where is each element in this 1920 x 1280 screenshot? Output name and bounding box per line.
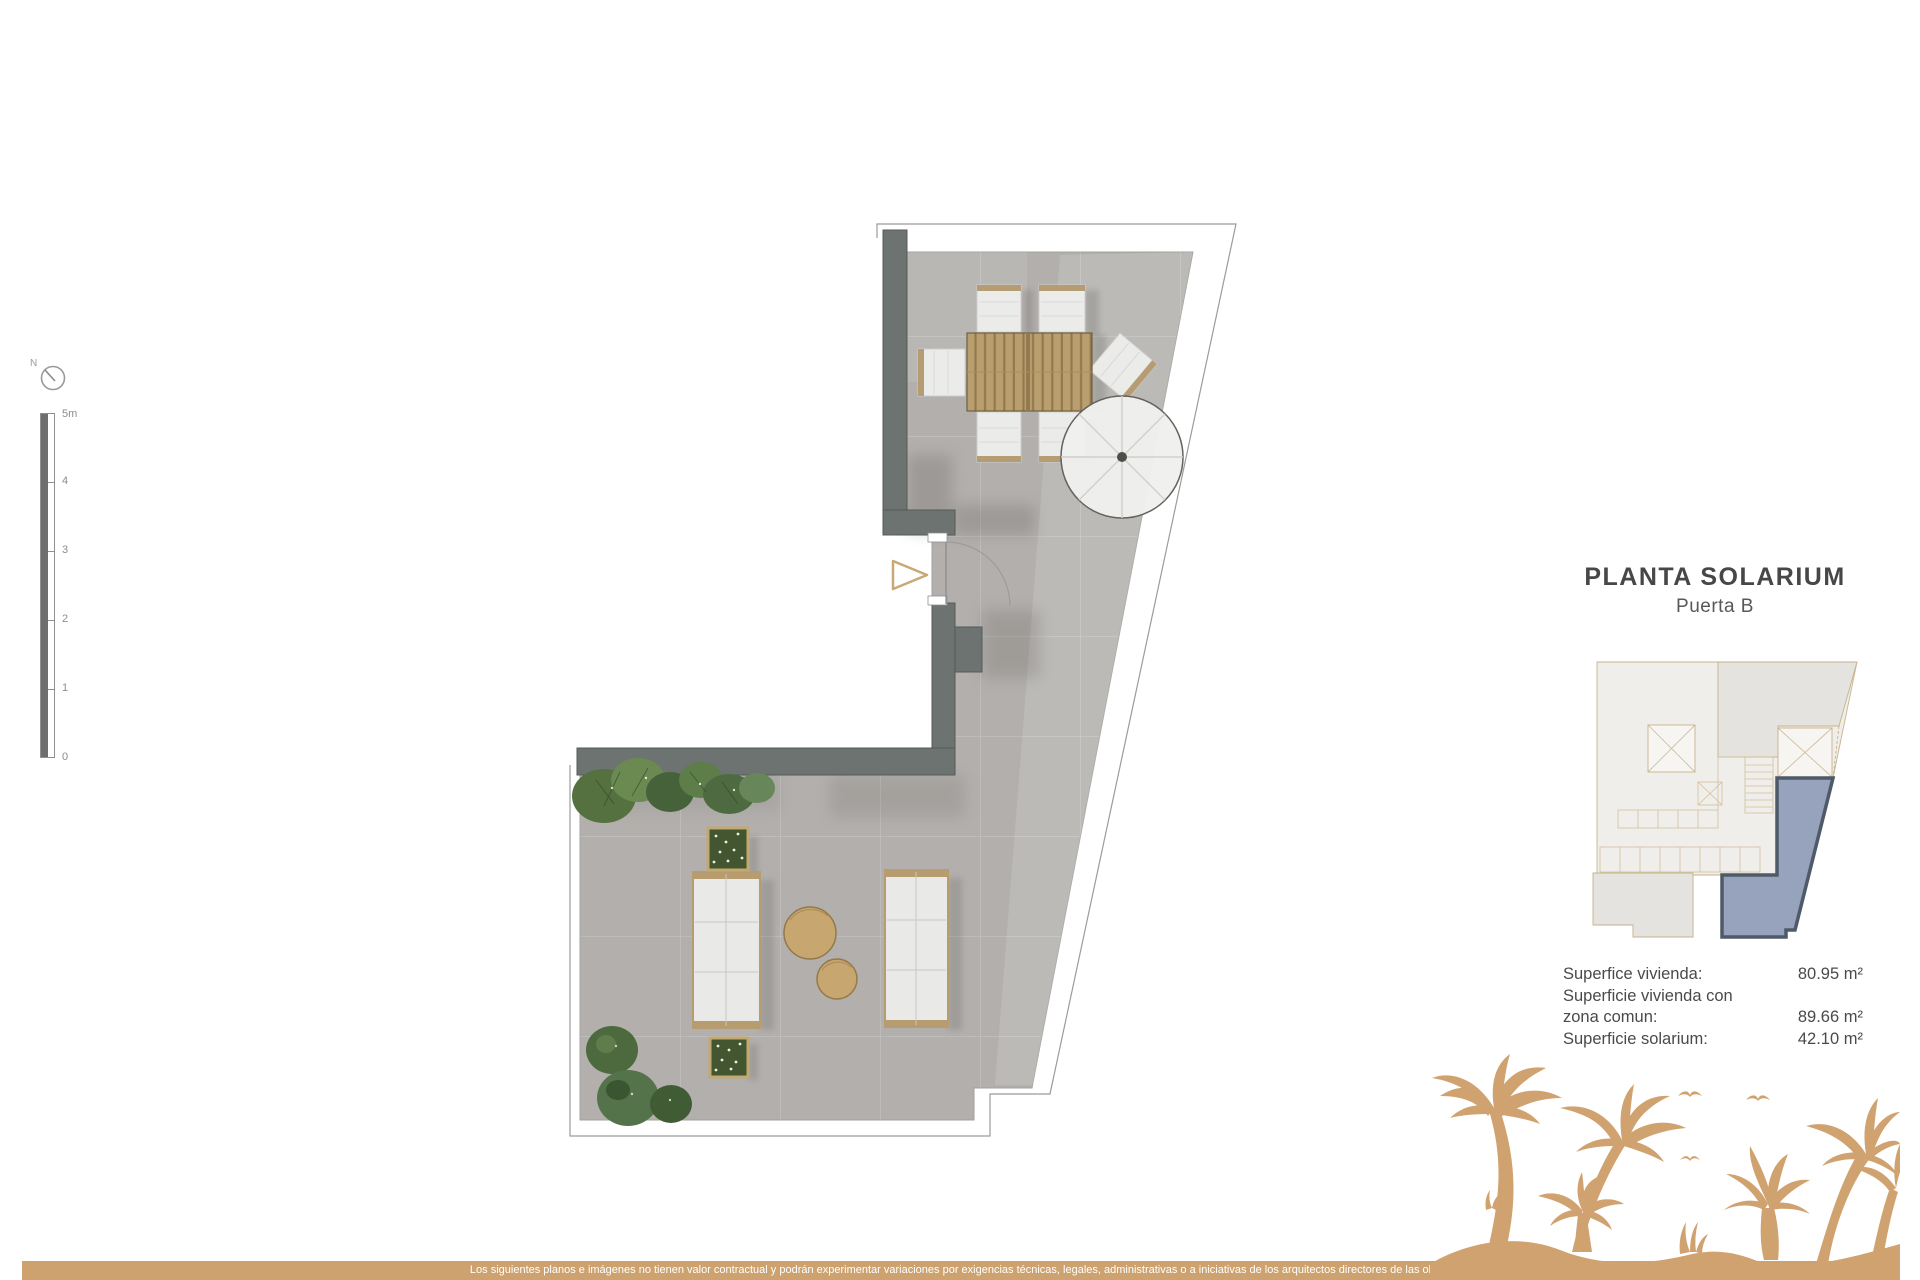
planter bbox=[708, 828, 748, 870]
scale-tick-label: 4 bbox=[62, 476, 68, 487]
planter bbox=[710, 1038, 748, 1077]
roof-area bbox=[1593, 873, 1693, 937]
shaft-right bbox=[1778, 726, 1839, 778]
wall-shadow bbox=[955, 505, 1035, 535]
area-label: Superfice vivienda: bbox=[1563, 964, 1702, 986]
scale-tick-label: 1 bbox=[62, 683, 68, 694]
wall bbox=[883, 230, 907, 514]
dining-chair bbox=[977, 285, 1021, 332]
bird bbox=[1678, 1091, 1702, 1097]
entrance-arrow-icon bbox=[893, 561, 927, 589]
disclaimer-text: Los siguientes planos e imágenes no tien… bbox=[470, 1264, 1450, 1276]
compass-n-label: N bbox=[30, 358, 37, 369]
palm-tree bbox=[1724, 1146, 1810, 1260]
palm-tree bbox=[1432, 1054, 1562, 1250]
scale-tick-label: 5m bbox=[62, 409, 77, 420]
bird bbox=[1680, 1156, 1700, 1161]
compass-needle bbox=[45, 370, 55, 381]
page-title: PLANTA SOLARIUM bbox=[1565, 563, 1865, 592]
area-row: Superficie solarium: 42.10 m² bbox=[1563, 1029, 1863, 1051]
scale-bar-fill bbox=[41, 414, 48, 757]
area-value: 42.10 m² bbox=[1798, 1029, 1863, 1051]
wall-shadow bbox=[982, 610, 1040, 678]
sun-lounger bbox=[885, 870, 948, 1027]
area-row: Superfice vivienda: 80.95 m² bbox=[1563, 964, 1863, 986]
locator-map bbox=[1592, 658, 1864, 943]
bird bbox=[1746, 1095, 1770, 1101]
parasol bbox=[1061, 396, 1183, 518]
area-label: Superficie solarium: bbox=[1563, 1029, 1708, 1051]
door-jamb bbox=[928, 596, 947, 605]
grass-tuft bbox=[1680, 1222, 1708, 1254]
area-summary: Superfice vivienda: 80.95 m² Superficie … bbox=[1563, 964, 1863, 1050]
page-canvas: N 5m 4 3 2 1 0 PLANTA SOLARIUM Puerta B bbox=[0, 0, 1920, 1280]
area-label: Superficie vivienda con bbox=[1563, 986, 1733, 1008]
side-table bbox=[817, 959, 857, 999]
side-table bbox=[784, 907, 836, 959]
dining-table bbox=[967, 333, 1092, 411]
area-row: Superficie vivienda con bbox=[1563, 986, 1863, 1008]
dining-chair bbox=[918, 349, 965, 396]
wall bbox=[932, 603, 955, 753]
door-jamb bbox=[928, 533, 947, 542]
scale-tick-label: 3 bbox=[62, 545, 68, 556]
shaft-left bbox=[1648, 725, 1695, 772]
area-value: 89.66 m² bbox=[1798, 1007, 1863, 1029]
beach-palms-graphic bbox=[1430, 1052, 1900, 1280]
north-compass: N bbox=[26, 352, 76, 400]
wall bbox=[955, 627, 982, 672]
title-block: PLANTA SOLARIUM Puerta B bbox=[1565, 563, 1865, 618]
area-label: zona comun: bbox=[1563, 1007, 1657, 1029]
scale-tick-label: 2 bbox=[62, 614, 68, 625]
wall bbox=[883, 510, 955, 535]
dining-chair bbox=[977, 412, 1021, 462]
area-value: 80.95 m² bbox=[1798, 964, 1863, 986]
wall-shadow bbox=[830, 775, 965, 817]
page-subtitle: Puerta B bbox=[1565, 596, 1865, 618]
palm-silhouette bbox=[1430, 1054, 1900, 1280]
scale-bar bbox=[40, 413, 55, 758]
dining-chair bbox=[1039, 285, 1085, 332]
palm-tree bbox=[1538, 1172, 1624, 1252]
area-row: zona comun: 89.66 m² bbox=[1563, 1007, 1863, 1029]
sun-lounger bbox=[693, 872, 760, 1028]
scale-tick-label: 0 bbox=[62, 752, 68, 763]
